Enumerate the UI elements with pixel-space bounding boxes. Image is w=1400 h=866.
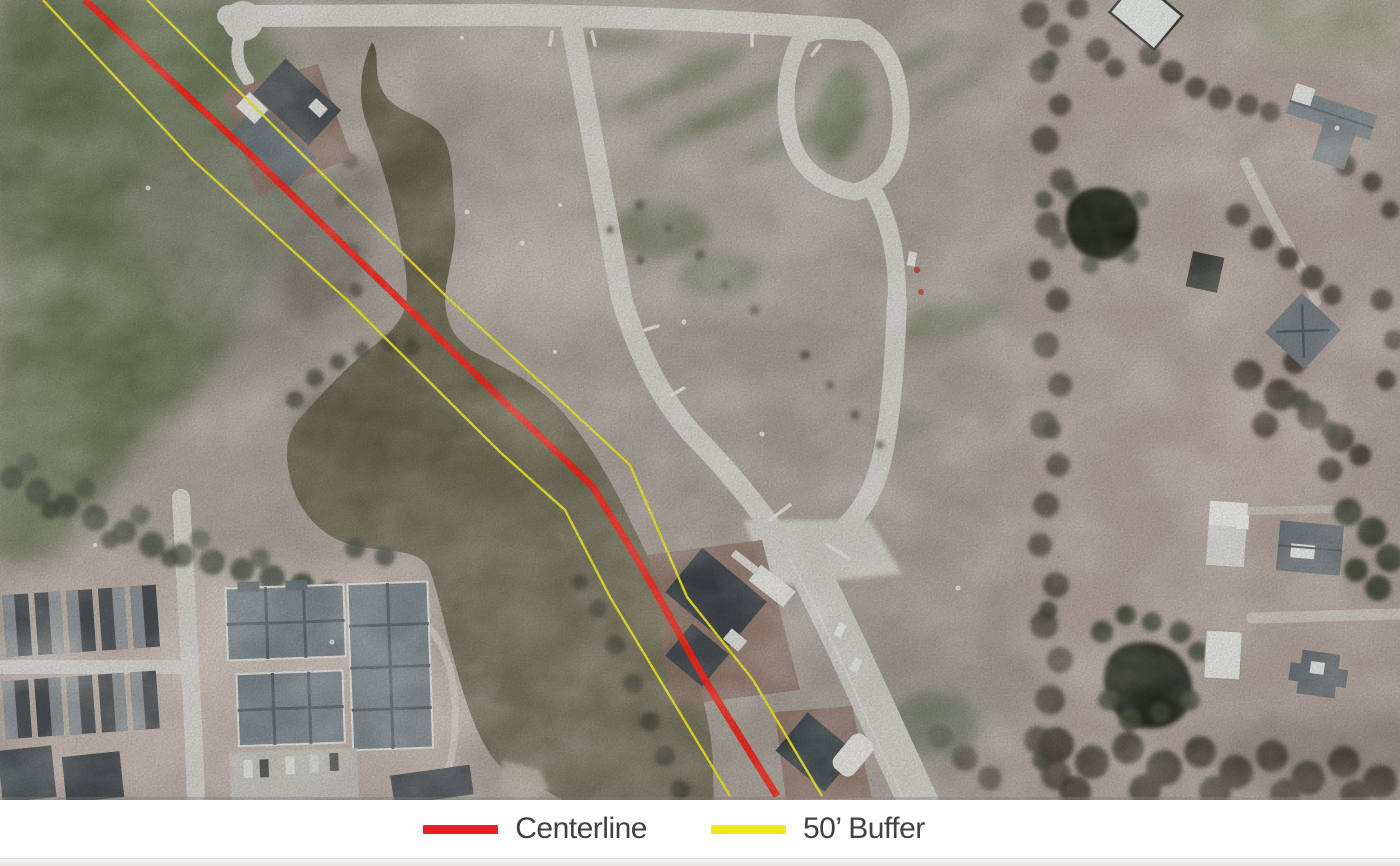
centerline-legend-label: Centerline [515, 814, 647, 844]
aerial-map [0, 0, 1400, 800]
legend-item-50ft-buffer: 50’ Buffer [711, 814, 925, 844]
map-exhibit: Centerline 50’ Buffer [0, 0, 1400, 866]
aerial-map-canvas [0, 0, 1400, 800]
buffer-legend-label: 50’ Buffer [803, 814, 925, 844]
legend-item-centerline: Centerline [423, 814, 647, 844]
centerline-line-swatch-icon [423, 825, 498, 834]
map-legend: Centerline 50’ Buffer [0, 800, 1374, 858]
adjacent-page-edge [0, 858, 1400, 866]
photo-grain-texture [0, 0, 1400, 800]
buffer-line-swatch-icon [711, 825, 786, 834]
